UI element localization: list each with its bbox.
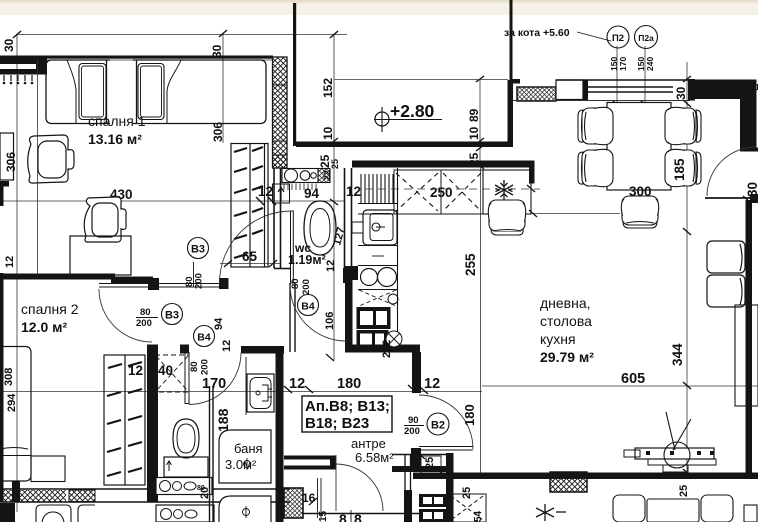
svg-text:80: 80 — [140, 307, 151, 318]
svg-text:6.58м²: 6.58м² — [355, 450, 394, 465]
svg-text:баня: баня — [234, 441, 263, 456]
svg-text:П2а: П2а — [638, 33, 654, 43]
svg-text:306: 306 — [4, 152, 18, 172]
svg-text:спалня 2: спалня 2 — [21, 301, 79, 317]
svg-text:Ап.В8; В13;: Ап.В8; В13; — [305, 398, 390, 415]
svg-text:89: 89 — [467, 108, 481, 122]
svg-text:306: 306 — [211, 122, 225, 142]
svg-text:15: 15 — [318, 510, 329, 522]
svg-text:180: 180 — [337, 376, 361, 392]
svg-text:В18; В23: В18; В23 — [305, 415, 369, 432]
svg-text:80: 80 — [189, 361, 200, 372]
svg-text:12: 12 — [221, 340, 233, 352]
svg-text:12: 12 — [346, 184, 361, 199]
svg-text:3.0м²: 3.0м² — [225, 457, 257, 472]
svg-text:240: 240 — [645, 57, 655, 71]
svg-text:антре: антре — [351, 436, 386, 451]
svg-text:12: 12 — [128, 363, 143, 378]
svg-text:605: 605 — [621, 371, 645, 387]
svg-text:94: 94 — [213, 317, 225, 330]
svg-text:B3: B3 — [191, 244, 205, 256]
svg-text:25: 25 — [678, 485, 690, 497]
svg-text:29.79 м²: 29.79 м² — [540, 349, 594, 365]
svg-text:25: 25 — [424, 457, 436, 469]
svg-text:дневна,: дневна, — [540, 295, 591, 311]
svg-text:за кота +5.60: за кота +5.60 — [504, 27, 570, 39]
svg-text:столова: столова — [540, 313, 592, 329]
svg-text:170: 170 — [202, 376, 226, 392]
svg-text:1.19м²: 1.19м² — [288, 253, 326, 267]
svg-text:6: 6 — [121, 275, 126, 285]
svg-text:80: 80 — [290, 278, 301, 289]
svg-text:13.16 м²: 13.16 м² — [88, 131, 142, 147]
svg-text:200: 200 — [404, 426, 420, 437]
svg-text:294: 294 — [6, 393, 18, 412]
svg-text:8: 8 — [339, 511, 347, 522]
svg-text:П2: П2 — [612, 33, 624, 44]
svg-text:200: 200 — [194, 273, 205, 289]
svg-text:255: 255 — [463, 253, 478, 276]
svg-text:8: 8 — [354, 511, 362, 522]
svg-text:B3: B3 — [165, 310, 179, 322]
svg-text:90: 90 — [408, 415, 419, 426]
svg-text:200: 200 — [200, 359, 211, 375]
svg-text:12.0 м²: 12.0 м² — [21, 319, 67, 335]
svg-text:200: 200 — [301, 279, 312, 295]
svg-text:170: 170 — [618, 57, 628, 71]
svg-text:B2: B2 — [431, 420, 445, 432]
svg-text:10: 10 — [321, 126, 335, 140]
svg-text:12: 12 — [289, 376, 305, 392]
svg-text:12: 12 — [424, 376, 440, 392]
svg-text:200: 200 — [136, 318, 152, 329]
svg-text:344: 344 — [670, 343, 685, 366]
svg-text:в.1: в.1 — [748, 83, 758, 92]
svg-text:106: 106 — [324, 312, 336, 330]
svg-text:B4: B4 — [301, 301, 315, 313]
svg-text:+2.80: +2.80 — [390, 101, 435, 121]
svg-text:188: 188 — [215, 408, 231, 432]
svg-text:16: 16 — [302, 491, 316, 505]
svg-text:30: 30 — [745, 182, 758, 197]
svg-text:12: 12 — [325, 260, 337, 272]
svg-text:54: 54 — [473, 510, 484, 522]
svg-text:25: 25 — [461, 487, 473, 499]
svg-text:185: 185 — [672, 158, 687, 181]
svg-text:12: 12 — [4, 256, 16, 268]
svg-text:180: 180 — [462, 404, 477, 426]
svg-text:222: 222 — [381, 340, 393, 358]
svg-text:25: 25 — [330, 159, 340, 169]
svg-text:308: 308 — [3, 368, 15, 386]
svg-text:кухня: кухня — [540, 331, 576, 347]
svg-text:10: 10 — [467, 126, 481, 140]
svg-text:30: 30 — [2, 38, 16, 52]
svg-text:40: 40 — [158, 363, 173, 378]
svg-text:152: 152 — [321, 78, 335, 98]
svg-text:30: 30 — [674, 86, 688, 100]
svg-text:спалня 1: спалня 1 — [88, 113, 146, 129]
svg-text:B4: B4 — [197, 332, 211, 344]
